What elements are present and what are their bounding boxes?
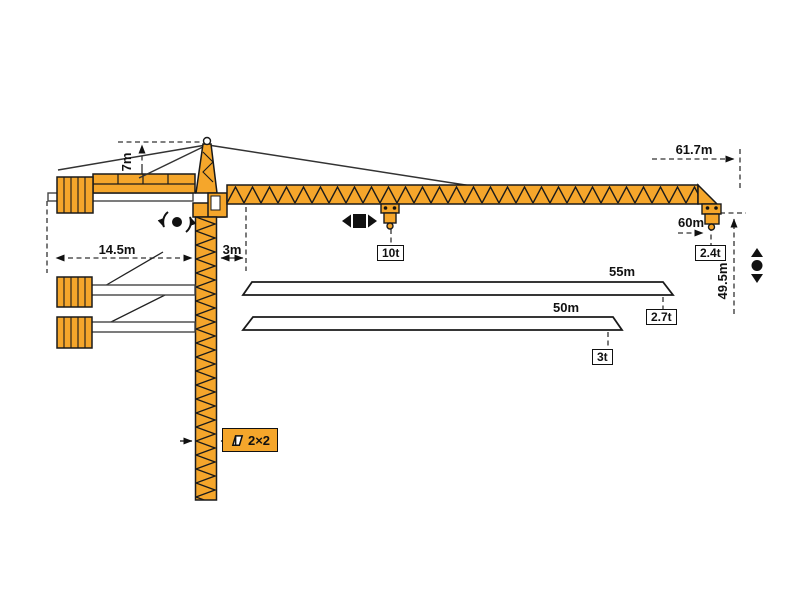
crane-spec-diagram: 7m 14.5m 3m 61.7m 60m 49.5m 10t 2.4t 55m…: [0, 0, 800, 600]
operator-cab: [193, 193, 227, 217]
tower-mast: [196, 217, 217, 500]
jib-option-50m-label: 50m: [550, 301, 582, 315]
tower-section-text: 2×2: [248, 433, 270, 448]
jib-option-bars: [243, 282, 673, 330]
tower-section-icon: [230, 433, 245, 448]
dim-label-counter-jib-radius: 14.5m: [92, 243, 142, 257]
dim-label-hook-height: 49.5m: [716, 255, 730, 307]
jib-option-55m-label: 55m: [606, 265, 638, 279]
jib-option-55m-capacity-badge: 2.7t: [646, 309, 677, 325]
trolley-travel-icon: [342, 214, 377, 228]
dim-label-jib-length: 61.7m: [669, 143, 719, 157]
dim-label-min-radius: 3m: [217, 243, 247, 257]
max-capacity-badge: 10t: [377, 245, 404, 261]
jib: [227, 185, 717, 204]
crane-drawing: [0, 0, 800, 600]
trolley-hook: [381, 204, 399, 229]
slew-icon: [163, 212, 191, 232]
ballast-options: [57, 252, 195, 348]
hoist-icon: [751, 248, 763, 283]
tip-capacity-badge: 2.4t: [695, 245, 726, 261]
tower-section-badge: 2×2: [222, 428, 278, 452]
counterweight-stack: [57, 177, 93, 213]
dim-label-tower-head-height: 7m: [120, 147, 134, 177]
jib-option-50m-capacity-badge: 3t: [592, 349, 613, 365]
dim-label-tip-radius: 60m: [674, 216, 708, 230]
